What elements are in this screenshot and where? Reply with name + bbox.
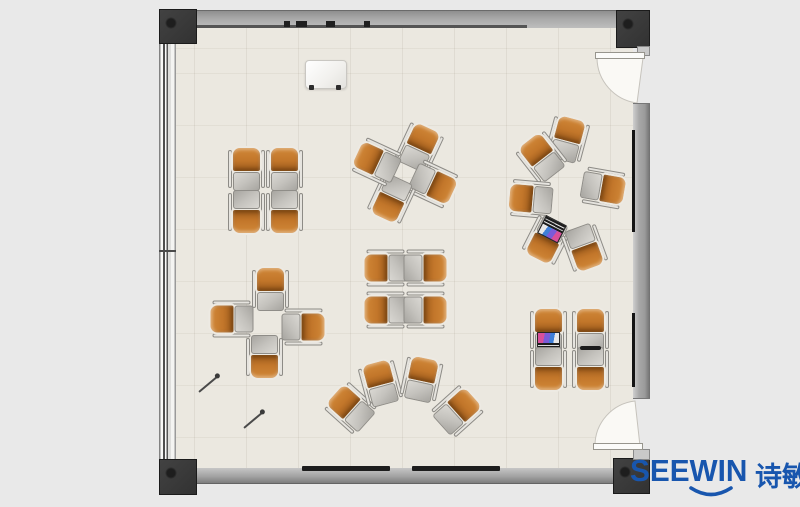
cluster-mid-left-pinwheel-chair-desk-unit [208, 301, 254, 338]
cluster-right-circle-chair-desk-unit [577, 166, 629, 210]
wall-right [633, 103, 650, 399]
chair-seat [255, 266, 286, 293]
cluster-bottom-right-chair-desk-unit [530, 346, 567, 392]
tablet-desk [579, 171, 602, 201]
tablet-device [580, 346, 601, 350]
wall-rail [632, 130, 635, 232]
chair-seat [299, 312, 326, 343]
cluster-middle-chair-desk-unit [362, 292, 408, 329]
chair-seat [208, 304, 235, 335]
cluster-right-circle-chair-desk-unit [505, 179, 554, 220]
cluster-mid-left-pinwheel-chair-desk-unit [280, 309, 326, 346]
cluster-mid-left-pinwheel-chair-desk-unit [246, 334, 283, 380]
column-top-left [159, 9, 197, 44]
cluster-middle-chair-desk-unit [402, 250, 448, 287]
wall-whiteboard [412, 466, 500, 471]
tablet-desk [271, 190, 298, 209]
chair-seat [269, 146, 300, 173]
chair-seat [362, 295, 389, 326]
laptop-screen [538, 333, 559, 343]
cluster-top-left-chair-desk-unit [228, 146, 265, 192]
cluster-bottom-right-chair-desk-unit [572, 346, 609, 392]
wall-whiteboard [302, 466, 390, 471]
chair-seat [533, 365, 564, 392]
tablet-desk [251, 335, 278, 354]
tablet-desk [532, 186, 553, 215]
tablet-desk [233, 190, 260, 209]
chair-seat [575, 365, 606, 392]
cluster-middle-chair-desk-unit [362, 250, 408, 287]
tablet-desk [257, 292, 284, 311]
cluster-top-left-chair-desk-unit [266, 146, 303, 192]
seewin-logo-text: SEEWIN [630, 453, 747, 489]
floorplan-canvas: SEEWIN 诗敏 [0, 0, 800, 507]
door-swing-top-right [590, 54, 650, 110]
window-mullion [159, 250, 176, 252]
chair-seat [269, 208, 300, 235]
seewin-logo: SEEWIN 诗敏 [626, 449, 798, 501]
chair-seat [575, 307, 606, 334]
chair-seat [249, 353, 280, 380]
wall-fixture-mark [284, 21, 290, 27]
wall-fixture-mark [296, 21, 307, 27]
chair-seat [506, 182, 536, 215]
chair-seat [231, 146, 262, 173]
tablet-desk [403, 379, 433, 403]
tablet-desk [403, 255, 422, 282]
wall-rail [632, 313, 635, 387]
wall-fixture-mark [326, 21, 335, 27]
column-top-right [616, 10, 650, 48]
chair-seat [533, 307, 564, 334]
chair-seat [362, 253, 389, 284]
chair-seat [421, 253, 448, 284]
cluster-top-left-chair-desk-unit [266, 189, 303, 235]
tablet-desk [281, 314, 300, 341]
wall-top-edge [196, 25, 527, 28]
cluster-top-left-chair-desk-unit [228, 189, 265, 235]
tablet-desk [234, 306, 253, 333]
cluster-mid-left-pinwheel-chair-desk-unit [252, 266, 289, 312]
cart-caster [336, 85, 341, 90]
cluster-middle-chair-desk-unit [402, 292, 448, 329]
chair-seat [231, 208, 262, 235]
logo-smile-arc [688, 486, 734, 499]
chair-seat [421, 295, 448, 326]
wall-fixture-mark [364, 21, 370, 27]
cart-caster [309, 85, 314, 90]
tablet-desk [535, 347, 562, 366]
door-leaf-top-right [595, 52, 645, 59]
column-bottom-left [159, 459, 197, 495]
seewin-logo-cjk: 诗敏 [755, 455, 800, 494]
tablet-desk [403, 297, 422, 324]
